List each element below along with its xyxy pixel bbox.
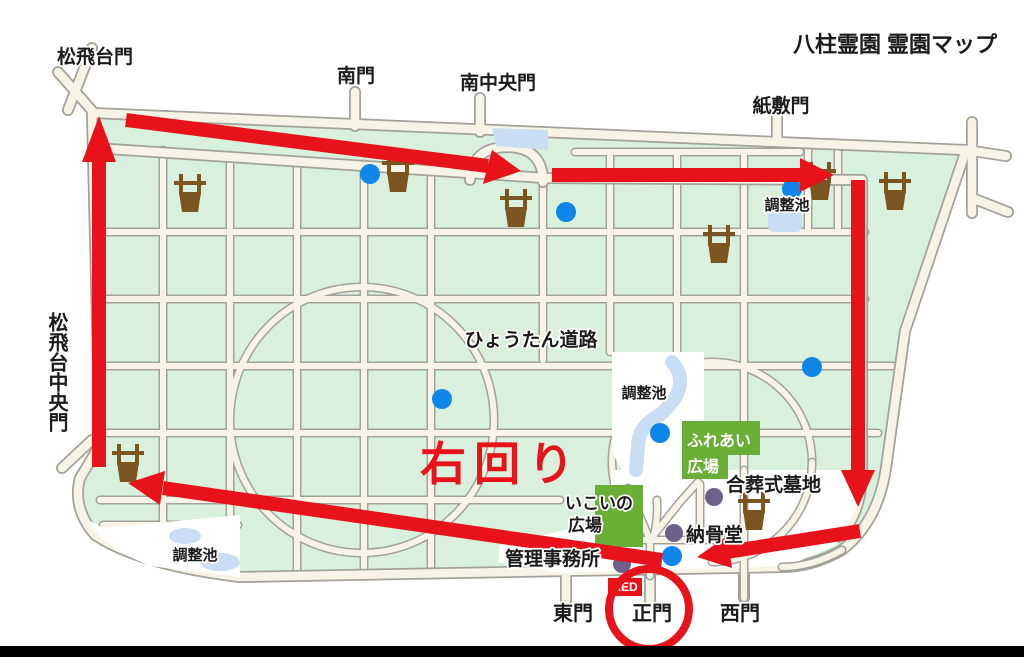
bottom-black-bar (0, 646, 1024, 657)
pond-label-ne: 調整池 (764, 196, 809, 214)
ikoi-plaza-label-1: いこいの (565, 494, 633, 513)
gate-label-matsuhidai: 松飛台門 (57, 45, 133, 68)
gate-label-nishi: 西門 (720, 602, 760, 625)
gasso-cemetery-label: 合葬式墓地 (726, 473, 821, 496)
gate-label-higashi: 東門 (553, 602, 593, 625)
hyotan-road-label: ひょうたん道路 (464, 328, 598, 351)
fureai-plaza-label-1: ふれあい (687, 432, 751, 450)
purple-dot-marker (705, 488, 723, 506)
map-title: 八柱霊園 霊園マップ (793, 32, 998, 57)
blue-dot-marker (556, 202, 576, 222)
clockwise-direction-label: 右回り (420, 438, 582, 490)
nokotsudo-label: 納骨堂 (686, 523, 743, 546)
admin-office-label: 管理事務所 (505, 547, 600, 570)
pond-label-sw: 調整池 (172, 546, 217, 564)
blue-dot-marker (432, 389, 452, 409)
gate-label-main: 正門 (632, 602, 672, 625)
map-canvas: AED 八柱霊園 霊園マップ 松飛台門 南門 南中央門 紙敷門 松飛台中央門 東… (0, 0, 1024, 657)
gate-label-kamishiki: 紙敷門 (752, 94, 809, 117)
blue-dot-marker (360, 164, 380, 184)
blue-dot-marker (802, 357, 822, 377)
purple-dot-marker (665, 524, 683, 542)
ikoi-plaza-label-2: 広場 (568, 515, 602, 535)
blue-dot-marker (650, 423, 670, 443)
fureai-plaza-label-2: 広場 (687, 457, 719, 476)
cemetery-map-screenshot: AED 八柱霊園 霊園マップ 松飛台門 南門 南中央門 紙敷門 松飛台中央門 東… (0, 0, 1024, 657)
gate-label-matsuhidai-chuo: 松飛台中央門 (45, 312, 68, 432)
gate-label-minami: 南門 (337, 65, 375, 87)
pond-south-west-a (169, 528, 201, 544)
pond-label-center: 調整池 (621, 384, 666, 402)
blue-dot-marker (662, 546, 682, 566)
gate-label-minami-chuo: 南中央門 (460, 71, 536, 94)
